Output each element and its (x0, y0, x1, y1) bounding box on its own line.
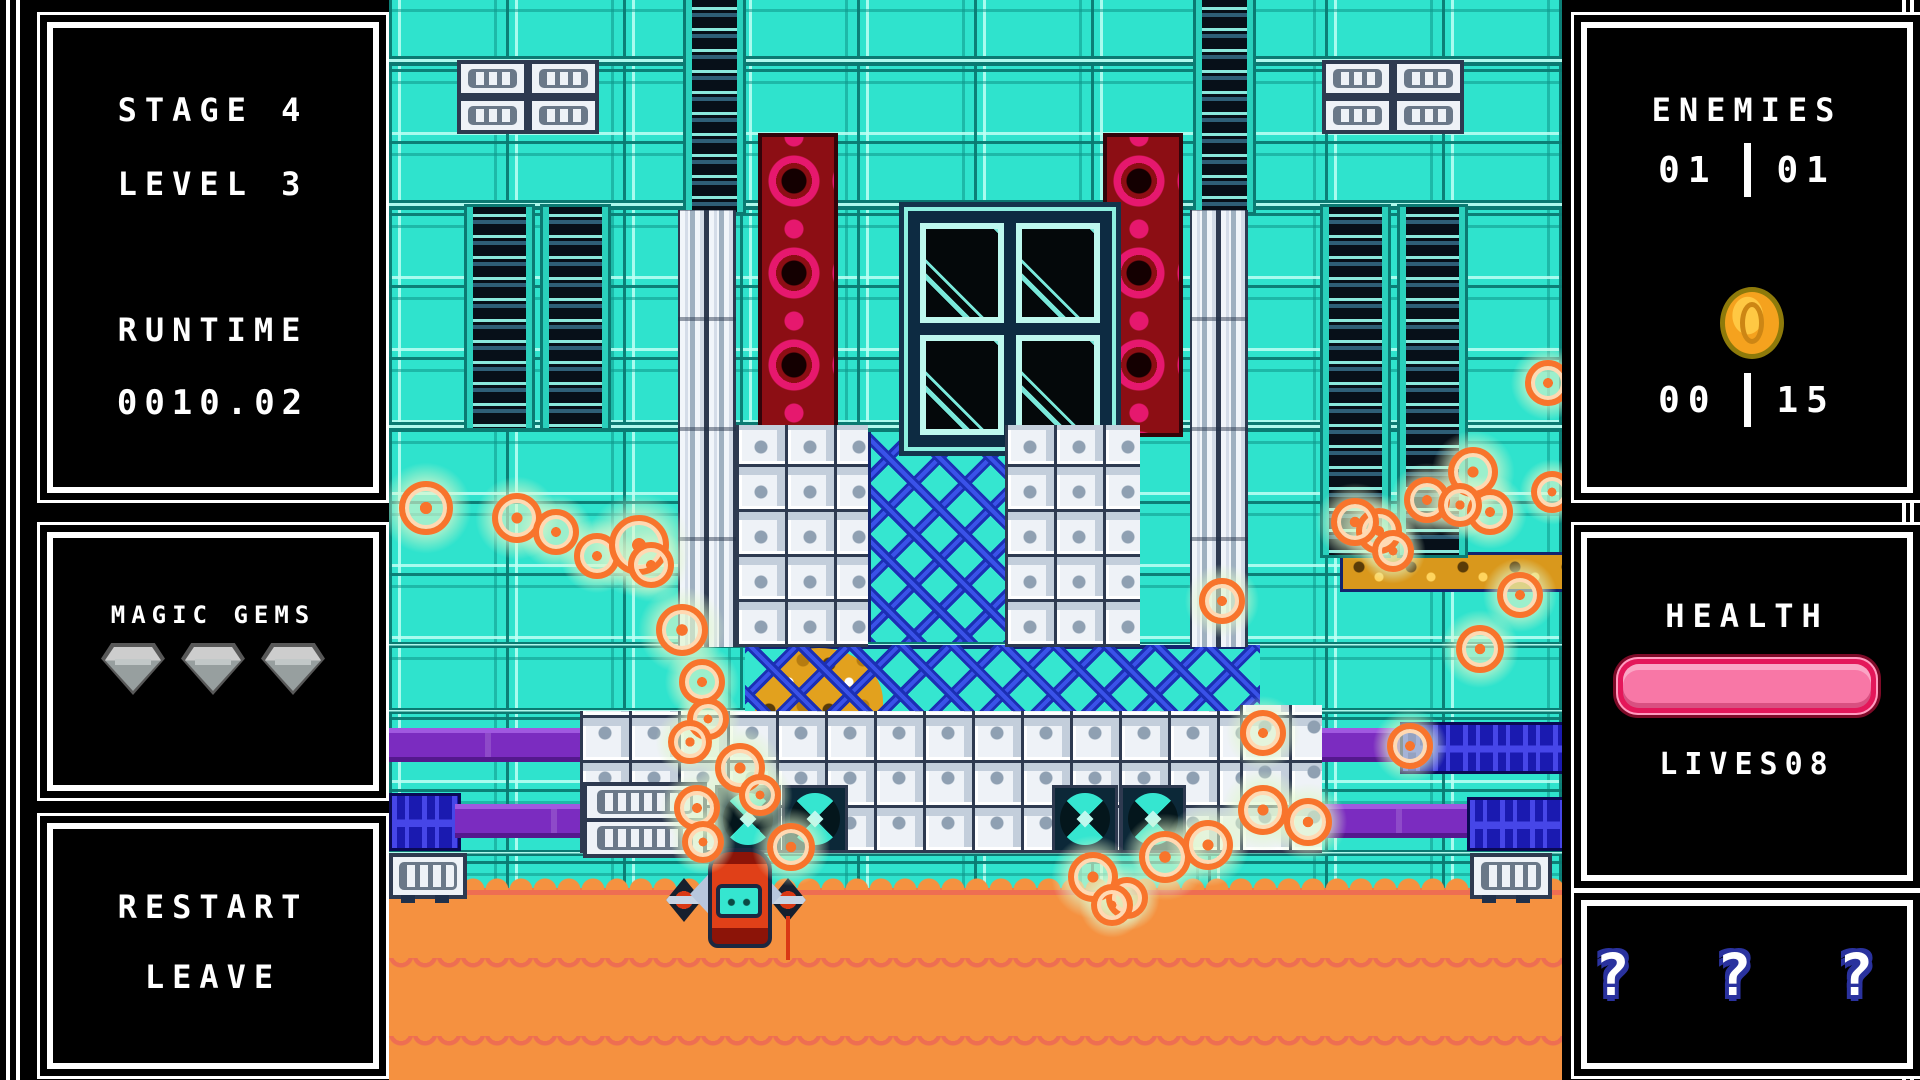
ring-collectible[interactable] (767, 823, 815, 871)
ring-collectible[interactable] (533, 509, 579, 555)
vent-block-group (457, 60, 599, 134)
pillar-column (678, 210, 736, 647)
gem-icon (101, 643, 165, 695)
screen-edge-left (0, 0, 37, 1080)
ring-collectible[interactable] (1331, 498, 1379, 546)
vent-block (389, 853, 467, 899)
coins-total: 15 (1777, 380, 1836, 421)
ring-collectible[interactable] (682, 821, 724, 863)
purple-pipe-band (389, 728, 580, 762)
blue-meander-pipe (1467, 797, 1562, 851)
health-label: HEALTH (1574, 597, 1920, 635)
stage-line: STAGE 4 (40, 91, 386, 129)
ring-collectible[interactable] (628, 542, 674, 588)
coin-icon (1720, 287, 1784, 359)
coin-slot (1740, 302, 1764, 344)
magic-gems-panel: MAGIC GEMS (37, 522, 389, 801)
magic-gems-row (40, 643, 386, 695)
wave-line (389, 958, 1562, 976)
vent-grill-icon (1481, 862, 1542, 889)
menu-panel: RESTART LEAVE (37, 813, 389, 1079)
window-block (904, 207, 1116, 451)
health-bar-fill (1623, 664, 1871, 708)
vent-grill-icon (1404, 69, 1453, 88)
ring-collectible[interactable] (1199, 578, 1245, 624)
enemies-total: 01 (1777, 150, 1836, 191)
leave-button[interactable]: LEAVE (40, 958, 386, 996)
ring-collectible[interactable] (1284, 798, 1332, 846)
ring-collectible[interactable] (399, 481, 453, 535)
purple-pipe-band (455, 804, 580, 838)
vent-grill-icon (1404, 106, 1453, 125)
ring-collectible[interactable] (1240, 710, 1286, 756)
stage-info-panel: STAGE 4 LEVEL 3 RUNTIME 0010.02 (37, 12, 389, 503)
vent-block-group (1322, 60, 1464, 134)
striped-shaft (467, 207, 532, 428)
ring-collectible[interactable] (1238, 785, 1288, 835)
striped-shaft (1196, 0, 1253, 212)
ring-collectible[interactable] (1183, 820, 1233, 870)
wave-line (389, 1036, 1562, 1054)
level-line: LEVEL 3 (40, 165, 386, 203)
ring-collectible[interactable] (1497, 572, 1543, 618)
red-ornate-column (758, 133, 838, 437)
enemies-label: ENEMIES (1574, 91, 1920, 129)
health-bar (1616, 657, 1878, 715)
window-pane (1016, 335, 1100, 435)
brick-wall-left (736, 425, 868, 647)
lava-water (389, 888, 1562, 1080)
vent-grill-icon (1333, 69, 1382, 88)
ring-collectible[interactable] (1372, 530, 1414, 572)
health-panel: HEALTH LIVES08 (1571, 522, 1920, 891)
ring-collectible[interactable] (656, 604, 708, 656)
mystery-text: ? ? ? (1574, 941, 1920, 1009)
runtime-label: RUNTIME (40, 311, 386, 349)
game-viewport[interactable] (389, 0, 1562, 1080)
ring-collectible[interactable] (668, 720, 712, 764)
lives-line: LIVES08 (1574, 747, 1920, 782)
striped-shaft (686, 0, 743, 212)
ring-collectible[interactable] (739, 774, 781, 816)
restart-button[interactable]: RESTART (40, 888, 386, 926)
ring-collectible[interactable] (1438, 483, 1482, 527)
window-pane (1016, 223, 1100, 323)
vent-grill-icon (1333, 106, 1382, 125)
window-pane (920, 335, 1004, 435)
separator-bar (1744, 143, 1751, 197)
coins-collected: 00 (1658, 380, 1717, 421)
gem-icon (261, 643, 325, 695)
mystery-panel: ? ? ? (1571, 890, 1920, 1079)
vent-grill-icon (468, 69, 517, 88)
antenna (786, 916, 790, 960)
vent-grill-icon (539, 69, 588, 88)
window-pane (920, 223, 1004, 323)
vent-grill-icon (399, 862, 457, 889)
cockpit-window (716, 884, 762, 918)
ring-collectible[interactable] (1387, 723, 1433, 769)
blue-meander-pipe (389, 793, 461, 851)
vent-grill-icon (468, 106, 517, 125)
enemies-count-row: 01 01 (1574, 143, 1920, 197)
enemies-panel: ENEMIES 01 01 00 15 (1571, 12, 1920, 503)
magic-gems-label: MAGIC GEMS (40, 601, 386, 629)
brick-wall-right (1005, 425, 1140, 647)
runtime-value: 0010.02 (40, 383, 386, 423)
vent-block (1470, 853, 1552, 899)
lattice-band-overlay (745, 645, 1260, 713)
ring-collectible[interactable] (1456, 625, 1504, 673)
vent-grill-icon (539, 106, 588, 125)
ring-collectible[interactable] (1091, 884, 1133, 926)
separator-bar (1744, 373, 1751, 427)
coins-count-row: 00 15 (1574, 373, 1920, 427)
enemies-current: 01 (1658, 150, 1717, 191)
striped-shaft (543, 207, 608, 428)
gem-icon (181, 643, 245, 695)
